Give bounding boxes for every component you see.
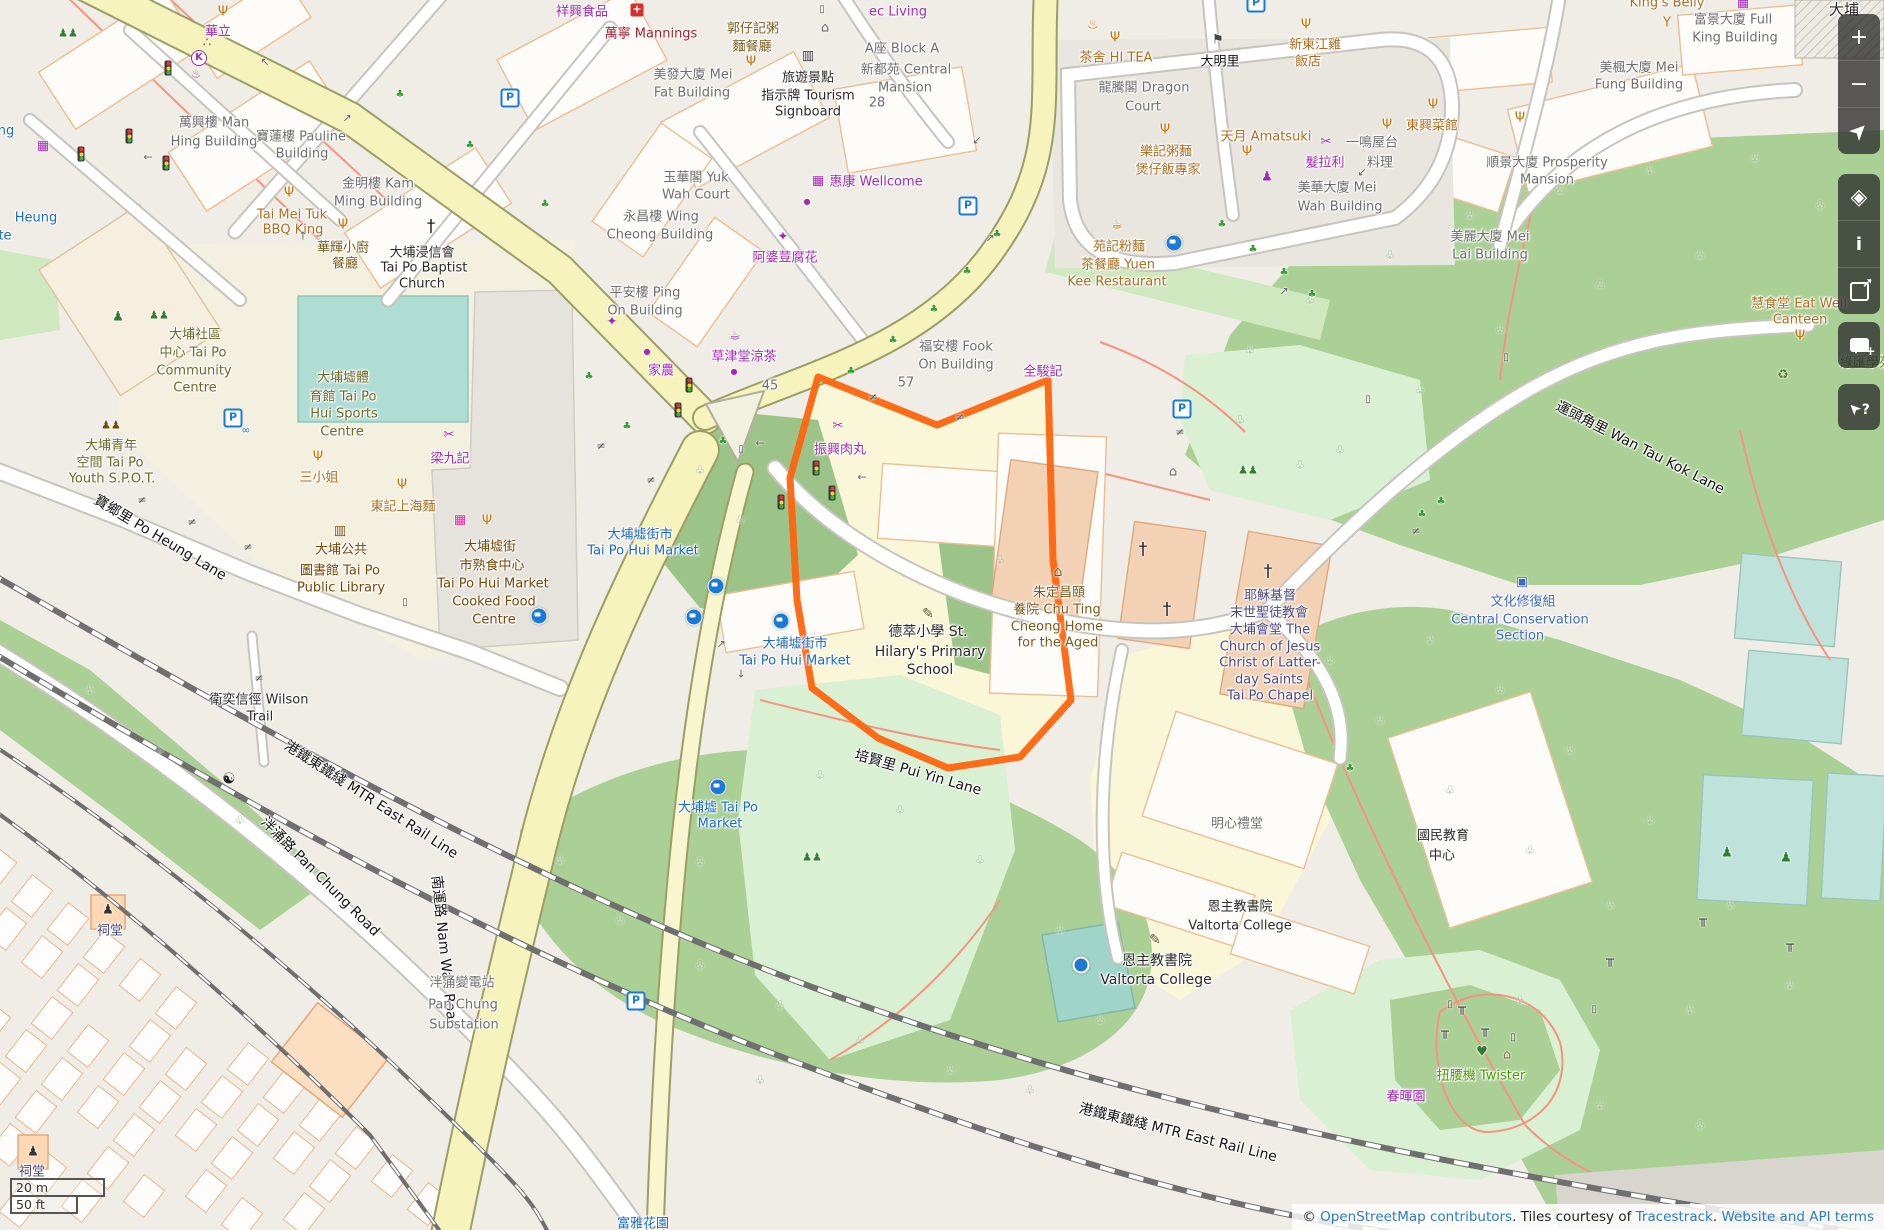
forest-tree-icon: ♧ xyxy=(1645,164,1656,176)
restaurant-icon: Ψ xyxy=(397,479,407,492)
map-label: 茶舍 HI TEA xyxy=(1080,52,1153,65)
map-label: A座 Block A xyxy=(865,43,939,56)
query-features-button[interactable]: ➤? xyxy=(1838,384,1880,430)
forest-tree-icon: ♧ xyxy=(895,804,906,816)
map-label: 玉華閣 Yuk xyxy=(663,172,728,185)
map-label: 大埔青年 xyxy=(85,440,137,453)
map-label: 美麗大廈 Mei xyxy=(1451,231,1530,244)
toolbar-group: + xyxy=(1838,322,1880,368)
parking-icon: P xyxy=(1173,400,1192,419)
map-label: 飯店 xyxy=(1295,56,1321,69)
oneway-arrow: ↖ xyxy=(260,57,269,68)
marker-dot xyxy=(1073,957,1090,974)
map-label: Market xyxy=(698,818,743,831)
map-label: 大埔公共 xyxy=(315,544,367,557)
map-label: BBQ King xyxy=(263,224,324,237)
map-label: for the Aged xyxy=(1018,637,1099,650)
map-label: Wah Court xyxy=(662,189,730,202)
map-label: Wah Building xyxy=(1297,201,1382,214)
shrine-icon: ♟ xyxy=(27,1146,39,1159)
map-label: 茶餐廳 Yuen xyxy=(1081,259,1155,272)
gate-icon: ≠ xyxy=(646,475,655,486)
map-label: 旅遊景點 xyxy=(782,72,834,85)
map-label: 養院 Chu Ting xyxy=(1013,604,1100,617)
map-label: Building xyxy=(276,148,329,161)
restaurant-icon: Ψ xyxy=(482,515,492,528)
traffic-signal-icon xyxy=(675,403,682,418)
map-label: 大埔墟街市 xyxy=(762,638,827,651)
trash-icon: ▯ xyxy=(1591,1005,1597,1015)
add-note-icon: + xyxy=(1850,338,1869,352)
zoom-in-button[interactable]: + xyxy=(1838,14,1880,60)
school-icon: ✎ xyxy=(1149,933,1161,947)
map-label: 恩主教書院 xyxy=(1122,954,1192,968)
map-label: 天月 Amatsuki xyxy=(1221,131,1312,144)
map-label: 家農 xyxy=(648,365,674,378)
restaurant-icon: Ψ xyxy=(1515,112,1525,125)
map-label: 末世聖徒教會 xyxy=(1230,607,1308,620)
forest-tree-icon: ♧ xyxy=(695,464,706,476)
restaurant-icon: Ψ xyxy=(1301,19,1311,32)
traffic-signal-icon xyxy=(126,129,133,144)
map-label: 煲仔飯專家 xyxy=(1135,164,1200,177)
map-label: Valtorta College xyxy=(1188,920,1292,933)
map-label: 龍騰閣 Dragon xyxy=(1099,82,1190,95)
map-label: Hilary's Primary xyxy=(875,645,986,659)
church-cross-icon: † xyxy=(1163,602,1172,619)
restaurant-icon: Ψ xyxy=(746,56,756,69)
map-label: 餐廳 xyxy=(332,258,358,271)
map-graphics xyxy=(0,0,1884,1230)
map-label: 大埔浸信會 xyxy=(389,247,454,260)
forest-tree-icon: ♧ xyxy=(1015,614,1026,626)
gate-icon: ≠ xyxy=(868,392,877,403)
layers-button[interactable]: ◈ xyxy=(1838,174,1880,220)
restaurant-icon: Ψ xyxy=(218,6,228,19)
map-label: 福安樓 Fook xyxy=(919,341,993,354)
zoom-out-button[interactable]: − xyxy=(1838,60,1880,107)
map-label: 中心 Tai Po xyxy=(160,347,227,360)
restaurant-icon: Ψ xyxy=(284,187,294,200)
map-label: 郭仔記粥 xyxy=(727,23,779,36)
toolbar-group: ◈i➚ xyxy=(1838,174,1880,314)
gate-icon: ≠ xyxy=(187,517,196,528)
gate-icon: ≠ xyxy=(254,673,263,684)
traffic-signal-icon xyxy=(686,378,693,393)
map-label: Pan Chung xyxy=(428,999,498,1012)
map-label: 美華大廈 Mei xyxy=(1298,182,1377,195)
traffic-signal-icon xyxy=(165,61,172,76)
street-tree-icon: ♣ xyxy=(396,90,405,100)
map-label: 祠堂 xyxy=(19,1166,45,1179)
trash-icon: ▯ xyxy=(1503,353,1509,363)
trash-icon: ▯ xyxy=(1365,395,1371,405)
map-label: 28 xyxy=(869,97,886,110)
map-label: 美發大廈 Mei xyxy=(654,69,733,82)
map-label: 大埔墟街 xyxy=(464,541,516,554)
trash-icon: ▯ xyxy=(1510,1033,1516,1043)
street-tree-icon: ♣ xyxy=(1346,764,1355,774)
gate-icon: ≠ xyxy=(1411,526,1420,537)
butcher-icon: ✂ xyxy=(444,429,455,442)
map-label: 平安樓 Ping xyxy=(610,287,681,300)
people-icon: ♟♟ xyxy=(58,28,78,39)
restaurant-icon: Ψ xyxy=(338,219,348,232)
map-label: 指示牌 Tourism xyxy=(761,90,854,103)
map-label: On Building xyxy=(918,359,993,372)
map-label: 祠堂 xyxy=(97,925,123,938)
map-label: 市熟食中心 xyxy=(459,560,524,573)
map-label: ng xyxy=(0,125,14,138)
map-label: 三小姐 xyxy=(299,472,338,485)
forest-tree-icon: ♧ xyxy=(1465,209,1476,221)
map-label: Tai Po Baptist xyxy=(381,262,468,275)
forest-tree-icon: ♧ xyxy=(735,514,746,526)
map-label: 新東江雞 xyxy=(1289,39,1341,52)
yin-yang-icon: ☯ xyxy=(222,772,235,787)
shrine-icon: ♟ xyxy=(102,904,114,917)
forest-tree-icon: ♧ xyxy=(1750,152,1761,164)
house-icon: ⌂ xyxy=(1503,1049,1511,1062)
map-label: 慧食堂 Eat Well xyxy=(1751,298,1847,311)
hairdresser-icon: ✂ xyxy=(1321,136,1332,149)
street-tree-icon: ♣ xyxy=(585,372,594,382)
map-label: Tai Mei Tuk xyxy=(257,209,327,222)
map-label: 樂記粥麵 xyxy=(1140,146,1192,159)
forest-tree-icon: ♧ xyxy=(615,914,626,926)
forest-tree-icon: ♧ xyxy=(1595,1099,1606,1111)
map-label: Cheong Building xyxy=(607,229,714,242)
share-icon: ➚ xyxy=(1850,282,1869,301)
map-label: 東興菜館 xyxy=(1406,120,1458,133)
map-label: 大埔墟 Tai Po xyxy=(678,802,758,815)
map-label: King's Belly xyxy=(1630,0,1705,10)
zoom-out-icon: − xyxy=(1850,72,1868,97)
street-tree-icon: ♣ xyxy=(1249,245,1258,255)
map-label: Tai Po Hui Market xyxy=(587,545,698,558)
map-label: Valtorta College xyxy=(1100,973,1212,987)
forest-tree-icon: ♧ xyxy=(1525,844,1536,856)
picnic-table-icon: ╥ xyxy=(1699,914,1707,927)
tracestrack-link[interactable]: Tracestrack xyxy=(1636,1209,1713,1225)
baby-shop-icon: ✦ xyxy=(607,316,618,329)
zoom-in-icon: + xyxy=(1850,25,1868,50)
greengrocer-icon: ● xyxy=(731,368,738,376)
restaurant-icon: Ψ xyxy=(1795,330,1805,343)
forest-tree-icon: ♧ xyxy=(1385,249,1396,261)
forest-tree-icon: ♧ xyxy=(1055,924,1066,936)
map-label: 寶蓮樓 Pauline xyxy=(256,131,346,144)
locate-button[interactable]: ➤ xyxy=(1838,107,1880,154)
restaurant-icon: Ψ xyxy=(1110,32,1120,45)
forest-tree-icon: ♧ xyxy=(1515,994,1526,1006)
forest-tree-icon: ♧ xyxy=(1415,384,1426,396)
tennis-player-icon: ♟ xyxy=(1721,847,1733,860)
map-label: 永昌樓 Wing xyxy=(623,211,699,224)
map-label: ec Living xyxy=(869,6,927,19)
gate-icon: ≠ xyxy=(955,412,964,423)
parking-icon: P xyxy=(627,992,646,1011)
map-info-button[interactable]: i xyxy=(1838,220,1880,267)
traffic-signal-icon xyxy=(78,147,85,162)
map-label: Court xyxy=(1125,101,1161,114)
map-label: Public Library xyxy=(297,582,385,595)
map-label: Cooked Food xyxy=(452,596,536,609)
copyright-symbol: © xyxy=(1302,1209,1320,1225)
forest-tree-icon: ♧ xyxy=(155,744,166,756)
convenience-icon: ▦ xyxy=(37,140,49,153)
greengrocer-icon: ● xyxy=(644,348,651,356)
bus-stop-icon xyxy=(773,613,790,630)
forest-tree-icon: ♧ xyxy=(1495,684,1506,696)
forest-tree-icon: ♧ xyxy=(1695,249,1706,261)
street-tree-icon: ♣ xyxy=(623,422,632,432)
gate-icon: ≠ xyxy=(596,441,605,452)
traffic-signal-icon xyxy=(778,495,785,510)
map-label: 大明里 xyxy=(1200,56,1239,69)
gate-icon: ≠ xyxy=(137,495,146,506)
map-label: 45 xyxy=(762,380,779,393)
map-label: 順景大廈 Prosperity xyxy=(1486,157,1608,170)
oneway-arrow: ↓ xyxy=(736,669,745,680)
oneway-arrow: ↙ xyxy=(1357,167,1366,178)
share-button[interactable]: ➚ xyxy=(1838,267,1880,314)
street-tree-icon: ♣ xyxy=(1418,510,1427,520)
forest-tree-icon: ♧ xyxy=(755,1074,766,1086)
map-label: Mansion xyxy=(878,82,932,95)
toolbar-group: ➤? xyxy=(1838,384,1880,430)
signpost-icon: ⚑ xyxy=(1212,34,1224,47)
forest-tree-icon: ♧ xyxy=(1785,979,1796,991)
supermarket-icon: ▦ xyxy=(812,175,824,188)
forest-tree-icon: ♧ xyxy=(1445,784,1456,796)
map-label: Trail xyxy=(247,711,274,724)
map-info-icon: i xyxy=(1856,234,1862,255)
street-tree-icon: ♣ xyxy=(1437,497,1446,507)
library-icon: ▥ xyxy=(334,525,346,538)
picnic-table-icon: ╥ xyxy=(1481,1024,1489,1037)
office-icon: ▣ xyxy=(1516,576,1528,589)
restaurant-icon: Ψ xyxy=(1382,119,1392,132)
oneway-arrow: ↗ xyxy=(342,113,351,124)
forest-tree-icon: ♧ xyxy=(235,814,246,826)
bar-icon: Y xyxy=(1663,17,1671,30)
map-label: Tai Po Hui Market xyxy=(437,578,548,591)
k-shop-icon: K xyxy=(191,50,207,66)
greengrocer-icon: ● xyxy=(804,198,811,206)
oneway-arrow: ↙ xyxy=(972,135,981,146)
street-tree-icon: ♣ xyxy=(1280,268,1289,278)
traffic-signal-icon xyxy=(829,486,836,501)
map-label: day Saints xyxy=(1235,674,1303,687)
picnic-table-icon: ╥ xyxy=(1786,939,1794,952)
scale-metric: 20 m xyxy=(10,1178,105,1197)
toolbar-group: +−➤ xyxy=(1838,14,1880,154)
map-label: Community xyxy=(156,365,231,378)
bus-stop-icon xyxy=(686,609,703,626)
map-label: 空間 Tai Po xyxy=(77,457,144,470)
map-label: King Building xyxy=(1692,32,1778,45)
map-label: Canteen xyxy=(1773,314,1828,327)
parking-icon: P xyxy=(1247,0,1266,13)
forest-tree-icon: ♧ xyxy=(1815,199,1826,211)
forest-tree-icon: ♧ xyxy=(1555,184,1566,196)
map-label: 大埔墟體 xyxy=(317,372,369,385)
map-label: Fat Building xyxy=(654,87,730,100)
scale-bar: 20 m 50 ft xyxy=(10,1178,105,1214)
forest-tree-icon: ♧ xyxy=(815,769,826,781)
picnic-table-icon: ╥ xyxy=(1458,1002,1466,1015)
map-label: 文化修復組 xyxy=(1490,596,1555,609)
map-label: te xyxy=(0,230,12,243)
bicycle-parking-icon: ∞ xyxy=(241,425,250,436)
street-tree-icon: ♣ xyxy=(719,437,728,447)
map-label: 金明樓 Kam xyxy=(342,178,414,191)
restaurant-icon: Ψ xyxy=(313,451,323,464)
map-label: 苑記粉麵 xyxy=(1093,241,1145,254)
map-label: 祥興食品 xyxy=(556,6,608,19)
map-label: Christ of Latter- xyxy=(1219,657,1321,670)
oneway-arrow: ← xyxy=(857,472,866,483)
map-label: 梁九記 xyxy=(430,453,469,466)
trash-icon: ▯ xyxy=(1447,1000,1453,1010)
map-label: 大埔墟街市 xyxy=(607,529,672,542)
picnic-table-icon: ╥ xyxy=(1441,1026,1449,1039)
gate-icon: ≠ xyxy=(243,542,252,553)
forest-tree-icon: ♧ xyxy=(555,854,566,866)
street-tree-icon: ♣ xyxy=(847,367,856,377)
layers-icon: ◈ xyxy=(1851,185,1868,210)
oneway-arrow: ↗ xyxy=(985,233,994,244)
forest-tree-icon: ♧ xyxy=(695,959,706,971)
map-label: Centre xyxy=(173,382,216,395)
forest-tree-icon: ♧ xyxy=(1425,634,1436,646)
map-label: 國民教育 xyxy=(1417,830,1469,843)
map-label: Centre xyxy=(320,426,363,439)
runner-icon: ♟ xyxy=(112,311,124,324)
forest-tree-icon: ♧ xyxy=(975,854,986,866)
map-label: Tai Po Hui Market xyxy=(739,655,850,668)
map-label: Lai Building xyxy=(1452,249,1528,262)
shop-icon: ▦ xyxy=(1737,0,1749,10)
map-label: Youth S.P.O.T. xyxy=(69,473,156,486)
forest-tree-icon: ♧ xyxy=(85,684,96,696)
map-label: Section xyxy=(1496,630,1544,643)
forest-tree-icon: ♧ xyxy=(1605,899,1616,911)
forest-tree-icon: ♧ xyxy=(1595,279,1606,291)
attribution-middle: . Tiles courtesy of xyxy=(1512,1209,1636,1225)
shelter-icon: ⌂ xyxy=(1169,466,1177,479)
osm-contributors-link[interactable]: OpenStreetMap contributors xyxy=(1320,1209,1512,1225)
church-cross-icon: † xyxy=(427,219,436,236)
map-label: 扭腰機 Twister xyxy=(1437,1070,1525,1083)
map-label: Centre xyxy=(472,614,515,627)
trash-icon: ▯ xyxy=(402,598,408,608)
fitness-icon: ♥ xyxy=(1476,1046,1488,1059)
scale-imperial: 50 ft xyxy=(10,1197,78,1214)
oneway-arrow: ↗ xyxy=(1279,286,1288,297)
map-label: Mansion xyxy=(1520,174,1574,187)
forest-tree-icon: ♧ xyxy=(1565,744,1576,756)
picnic-table-icon: ╥ xyxy=(1606,954,1614,967)
oneway-arrow: ← xyxy=(755,438,764,449)
map-label: Hing Building xyxy=(171,136,258,149)
oneway-arrow: ↑ xyxy=(298,231,307,242)
map-label: 東記上海麵 xyxy=(370,501,435,514)
map-label: 大埔社區 xyxy=(169,329,221,342)
terms-link[interactable]: Website and API terms xyxy=(1721,1209,1874,1225)
noodle-bowl-icon: ♨ xyxy=(1087,19,1099,32)
trash-icon: ▯ xyxy=(738,445,744,455)
playground-icon: ♟♟ xyxy=(1238,465,1258,476)
herbal-tea-icon: ☕ xyxy=(729,330,741,343)
oneway-arrow: ↗ xyxy=(716,639,725,650)
dessert-icon: ✦ xyxy=(778,231,789,244)
map-label: 富景大廈 Full xyxy=(1694,14,1772,27)
traffic-signal-icon xyxy=(813,461,820,476)
forest-tree-icon: ♧ xyxy=(695,856,706,868)
map-label: 振興肉丸 xyxy=(814,444,866,457)
map-label: Substation xyxy=(429,1019,498,1032)
trash-icon: ▯ xyxy=(819,5,825,15)
forest-tree-icon: ♧ xyxy=(775,999,786,1011)
map-label: Signboard xyxy=(775,106,841,119)
oneway-arrow: ← xyxy=(143,152,152,163)
parking-icon: P xyxy=(501,89,520,108)
sports-icon: ♟ xyxy=(1261,171,1273,184)
street-tree-icon: ♣ xyxy=(963,267,972,277)
forest-tree-icon: ♧ xyxy=(1685,1004,1696,1016)
community-icon: ♟♟ xyxy=(101,420,121,431)
church-cross-icon: † xyxy=(1139,542,1148,559)
map-label: 髮拉利 xyxy=(1305,157,1344,170)
street-tree-icon: ♣ xyxy=(541,200,550,210)
map-label: 57 xyxy=(898,377,915,390)
add-note-button[interactable]: + xyxy=(1838,322,1880,368)
playground-icon: ♟♟ xyxy=(802,852,822,863)
map-label: 麵餐廳 xyxy=(732,41,771,54)
tennis-player-icon: ♟ xyxy=(1780,852,1792,865)
street-tree-icon: ♣ xyxy=(466,141,475,151)
forest-tree-icon: ♧ xyxy=(995,554,1006,566)
map-label: 耶穌基督 xyxy=(1244,590,1296,603)
map-label: 衛奕信徑 Wilson xyxy=(210,694,309,707)
forest-tree-icon: ♧ xyxy=(1645,814,1656,826)
bus-stop-icon xyxy=(531,608,548,625)
map-label: On Building xyxy=(607,305,682,318)
forest-tree-icon: ♧ xyxy=(1295,459,1306,471)
forest-tree-icon: ♧ xyxy=(1235,414,1246,426)
map-label: 中心 xyxy=(1429,850,1455,863)
shelter-icon: ⌂ xyxy=(821,22,829,35)
teahouse-icon: ☕ xyxy=(1111,219,1123,232)
map-label: 春暉園 xyxy=(1386,1091,1425,1104)
map-canvas[interactable]: 祥興食品萬寧 Mannings華立郭仔記粥麵餐廳ec LivingA座 Bloc… xyxy=(0,0,1884,1230)
traffic-signal-icon xyxy=(163,156,170,171)
nursing-home-icon: ⌂ xyxy=(1054,565,1063,579)
forest-tree-icon: ♧ xyxy=(1245,344,1256,356)
map-label: 圖書館 Tai Po xyxy=(300,565,380,578)
butcher-icon: ✂ xyxy=(833,420,844,433)
map-label: 美楓大廈 Mei xyxy=(1600,62,1679,75)
map-label: 新都苑 Central xyxy=(861,64,951,77)
map-label: Church xyxy=(399,278,445,291)
map-label: Kee Restaurant xyxy=(1067,276,1166,289)
attribution-bar: © OpenStreetMap contributors. Tiles cour… xyxy=(1292,1204,1884,1230)
map-label: Tai Po Chapel xyxy=(1227,690,1313,703)
map-label: 恩主教書院 xyxy=(1207,901,1272,914)
map-label: Church of Jesus xyxy=(1220,641,1320,654)
